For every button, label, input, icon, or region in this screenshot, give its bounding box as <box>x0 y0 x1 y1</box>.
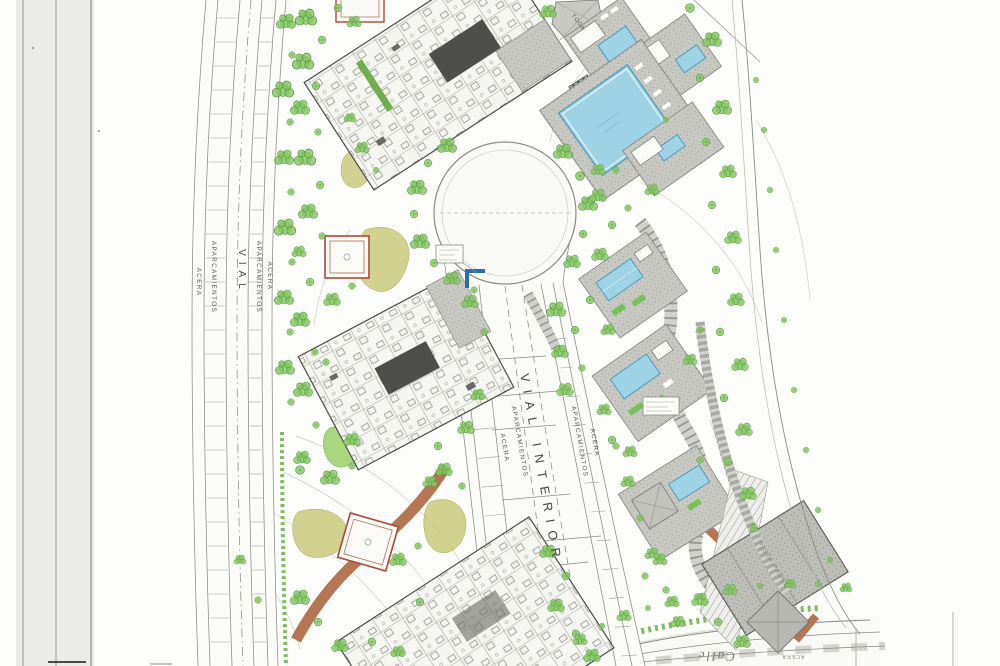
tree-icon <box>579 365 586 372</box>
tree-icon <box>757 583 763 589</box>
label-calle: Calle <box>697 649 735 665</box>
tree-icon <box>586 296 594 304</box>
tree-icon <box>625 205 632 212</box>
tree-icon <box>314 618 322 626</box>
tree-icon <box>716 328 724 336</box>
tree-icon <box>750 524 758 532</box>
tree-icon <box>642 573 649 580</box>
annotation-box-2 <box>643 397 679 415</box>
tree-icon <box>319 233 326 240</box>
tree-icon <box>697 457 704 464</box>
tree-icon <box>697 593 703 599</box>
scanned-site-plan: ACERA APARCAMIENTOS VIAL APARCAMIENTOS A… <box>0 0 1000 666</box>
tree-icon <box>637 515 644 522</box>
tree-icon <box>287 119 294 126</box>
site-plan-svg: ACERA APARCAMIENTOS VIAL APARCAMIENTOS A… <box>0 0 1000 666</box>
pergola-north <box>325 236 369 278</box>
tree-icon <box>761 127 767 133</box>
tree-icon <box>724 458 732 466</box>
tree-icon <box>579 230 587 238</box>
tree-icon <box>306 278 314 286</box>
tree-icon <box>712 266 720 274</box>
tree-icon <box>720 394 728 402</box>
tree-icon <box>697 327 704 334</box>
tree-icon <box>313 422 320 429</box>
tree-icon <box>312 82 320 90</box>
label-acera-east: ACERA <box>266 262 273 291</box>
tree-icon <box>416 598 424 606</box>
tree-icon <box>773 247 779 253</box>
tree-icon <box>827 557 833 563</box>
label-vial: VIAL <box>236 249 247 295</box>
label-aparcamientos-west: APARCAMIENTOS <box>210 241 217 313</box>
tree-icon <box>708 201 716 209</box>
tree-icon <box>562 572 570 580</box>
tree-icon <box>288 399 295 406</box>
tree-icon <box>791 387 797 393</box>
tree-icon <box>714 618 722 626</box>
tree-icon <box>781 317 787 323</box>
tree-icon <box>316 181 324 189</box>
tree-icon <box>608 436 616 444</box>
tree-icon <box>803 447 809 453</box>
label-acera-west: ACERA <box>195 268 202 297</box>
label-acera-bottom: ACERA <box>782 653 805 659</box>
tree-icon <box>315 129 322 136</box>
tree-icon <box>349 283 356 290</box>
tree-icon <box>599 623 605 629</box>
left-road-vial <box>192 0 286 666</box>
tree-icon <box>613 443 620 450</box>
tree-icon <box>696 74 704 82</box>
tree-icon <box>368 638 376 646</box>
tree-icon <box>608 221 616 229</box>
tree-icon <box>296 466 305 475</box>
tree-icon <box>323 359 330 366</box>
tree-icon <box>686 4 695 13</box>
tree-icon <box>424 159 432 167</box>
tree-icon <box>334 4 342 12</box>
tree-icon <box>415 543 422 550</box>
tree-icon <box>753 77 759 83</box>
pergola-top-edge <box>336 0 384 22</box>
tree-icon <box>471 287 478 294</box>
tree-icon <box>430 259 438 267</box>
tree-icon <box>571 326 579 334</box>
tree-icon <box>663 117 669 123</box>
tree-icon <box>289 52 296 59</box>
tree-icon <box>349 463 356 470</box>
tree-icon <box>702 138 710 146</box>
tree-icon <box>434 442 442 450</box>
tree-icon <box>287 329 294 336</box>
tree-icon <box>318 36 326 44</box>
tree-icon <box>373 167 379 173</box>
tree-icon <box>815 507 821 513</box>
tree-icon <box>289 259 296 266</box>
tree-icon <box>312 349 319 356</box>
tree-icon <box>613 167 620 174</box>
tree-icon <box>767 187 773 193</box>
tree-icon <box>481 329 488 336</box>
tree-icon <box>288 189 295 196</box>
tree-icon <box>663 587 670 594</box>
tree-icon <box>459 483 466 490</box>
tree-icon <box>410 210 418 218</box>
tree-icon <box>576 172 585 181</box>
tree-icon <box>815 581 821 587</box>
tree-icon <box>255 597 262 604</box>
tree-icon <box>645 605 651 611</box>
label-aparcamientos-east: APARCAMIENTOS <box>255 241 262 313</box>
